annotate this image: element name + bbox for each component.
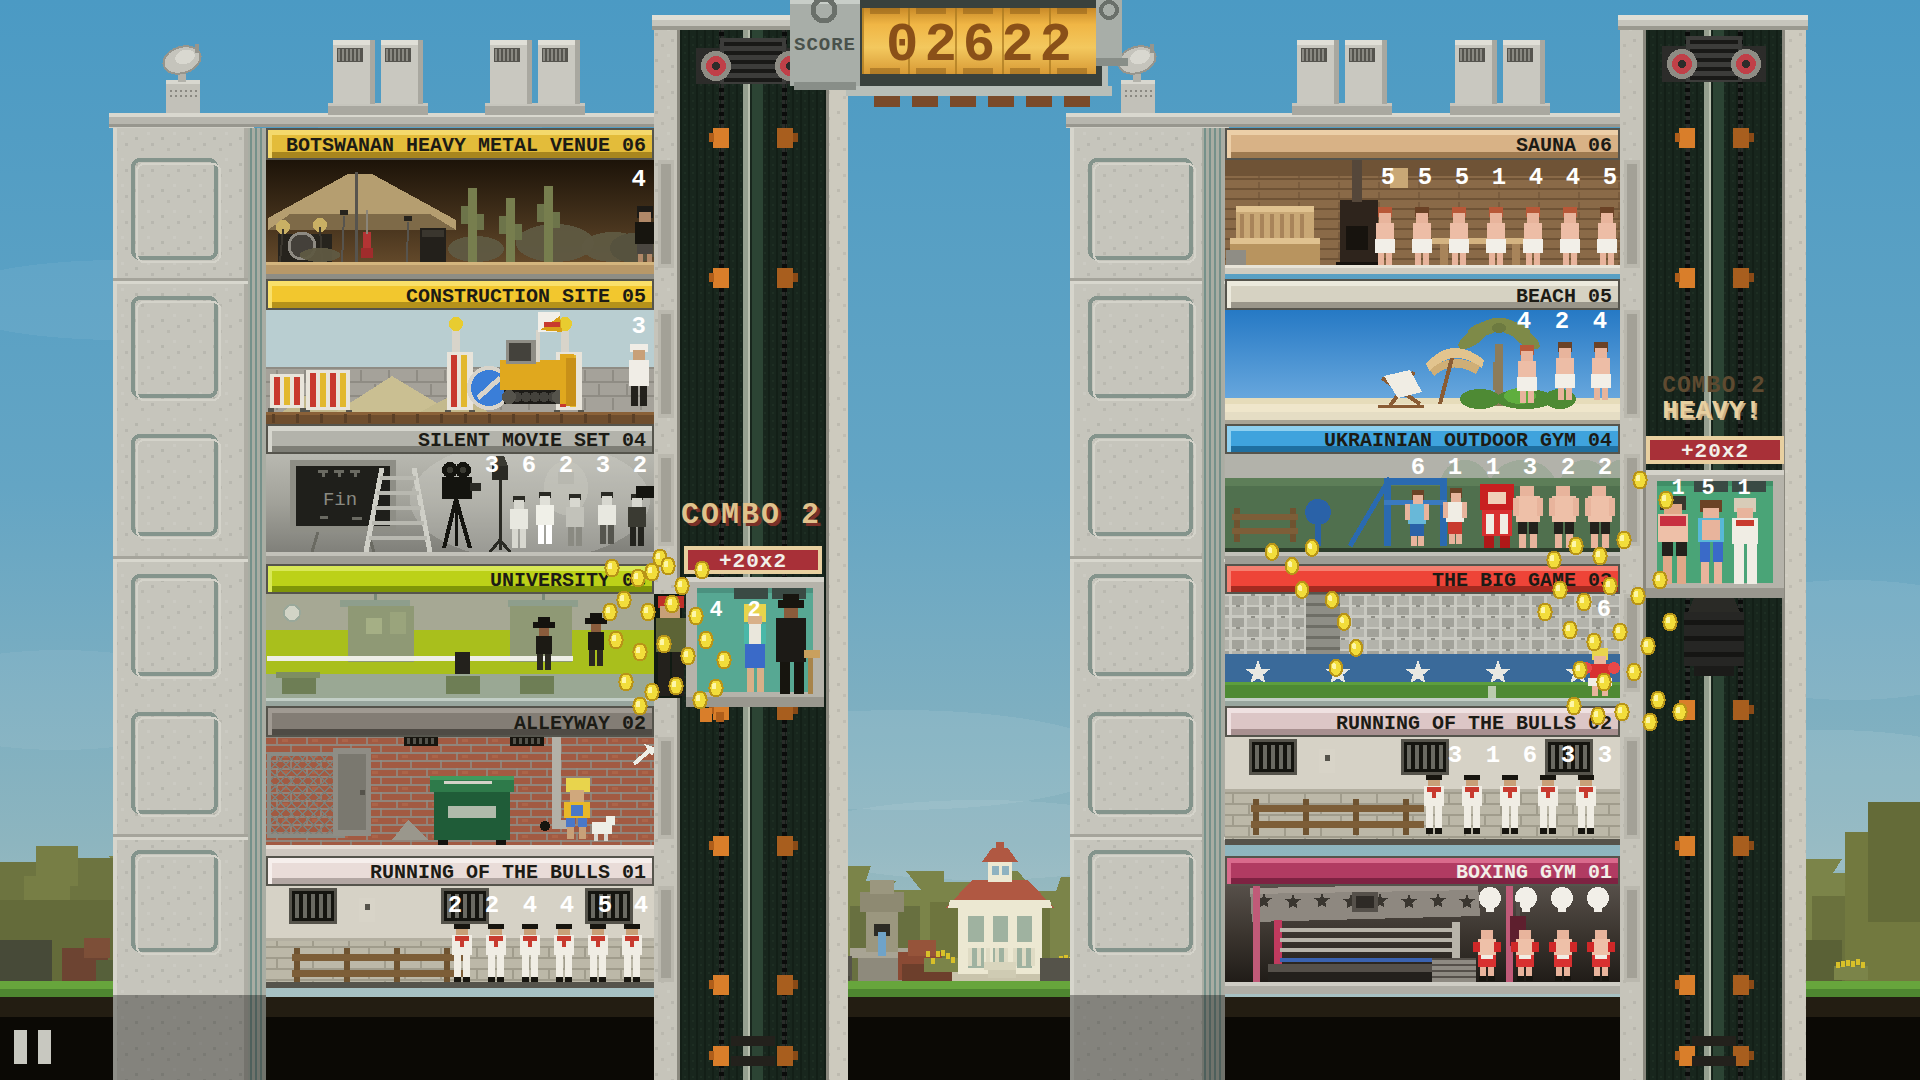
svg-text:5: 5 bbox=[1418, 164, 1432, 191]
svg-text:6: 6 bbox=[1523, 742, 1537, 769]
svg-text:+20x2: +20x2 bbox=[1681, 440, 1749, 463]
svg-text:5: 5 bbox=[1701, 476, 1714, 501]
svg-text:3: 3 bbox=[596, 452, 610, 479]
svg-text:2: 2 bbox=[448, 892, 462, 919]
svg-text:RUNNING OF THE BULLS 02: RUNNING OF THE BULLS 02 bbox=[1336, 712, 1612, 735]
svg-text:BOXING GYM 01: BOXING GYM 01 bbox=[1456, 861, 1612, 884]
svg-text:2: 2 bbox=[633, 452, 647, 479]
svg-text:4: 4 bbox=[560, 892, 574, 919]
svg-text:1: 1 bbox=[1486, 454, 1500, 481]
svg-text:4: 4 bbox=[523, 892, 537, 919]
svg-text:HEAVY!: HEAVY! bbox=[1662, 396, 1762, 426]
svg-text:5: 5 bbox=[1603, 164, 1617, 191]
svg-text:Fin: Fin bbox=[323, 489, 357, 511]
svg-text:5: 5 bbox=[1455, 164, 1469, 191]
svg-text:SCORE: SCORE bbox=[794, 34, 856, 56]
svg-text:UNIVERSITY 03: UNIVERSITY 03 bbox=[490, 569, 646, 592]
svg-text:COMBO 2: COMBO 2 bbox=[681, 498, 821, 532]
svg-text:4: 4 bbox=[1593, 308, 1607, 335]
svg-text:3: 3 bbox=[1598, 742, 1612, 769]
svg-text:1: 1 bbox=[1737, 476, 1750, 501]
svg-text:1: 1 bbox=[1486, 742, 1500, 769]
svg-text:4: 4 bbox=[709, 598, 722, 623]
svg-text:4: 4 bbox=[634, 892, 648, 919]
svg-text:3: 3 bbox=[1523, 454, 1537, 481]
svg-text:4: 4 bbox=[1517, 308, 1531, 335]
svg-text:4: 4 bbox=[1529, 164, 1543, 191]
svg-text:1: 1 bbox=[1448, 454, 1462, 481]
svg-text:1: 1 bbox=[1492, 164, 1506, 191]
svg-text:02622: 02622 bbox=[886, 15, 1078, 76]
svg-text:2: 2 bbox=[1561, 454, 1575, 481]
svg-text:BEACH 05: BEACH 05 bbox=[1516, 285, 1612, 308]
svg-text:5: 5 bbox=[1381, 164, 1395, 191]
svg-text:RUNNING OF THE BULLS 01: RUNNING OF THE BULLS 01 bbox=[370, 861, 646, 884]
svg-text:2: 2 bbox=[485, 892, 499, 919]
svg-text:2: 2 bbox=[1598, 454, 1612, 481]
svg-text:2: 2 bbox=[1555, 308, 1569, 335]
svg-text:1: 1 bbox=[1671, 476, 1684, 501]
svg-text:+20x2: +20x2 bbox=[719, 550, 787, 573]
svg-text:2: 2 bbox=[559, 452, 573, 479]
svg-text:3: 3 bbox=[1561, 742, 1575, 769]
svg-text:SILENT MOVIE SET 04: SILENT MOVIE SET 04 bbox=[418, 429, 646, 452]
svg-text:6: 6 bbox=[1411, 454, 1425, 481]
svg-text:3: 3 bbox=[1448, 742, 1462, 769]
svg-text:BOTSWANAN HEAVY METAL VENUE 06: BOTSWANAN HEAVY METAL VENUE 06 bbox=[286, 134, 646, 157]
svg-text:4: 4 bbox=[1566, 164, 1580, 191]
svg-text:2: 2 bbox=[747, 598, 760, 623]
svg-text:6: 6 bbox=[522, 452, 536, 479]
svg-text:5: 5 bbox=[598, 892, 612, 919]
svg-text:6: 6 bbox=[1597, 596, 1611, 623]
svg-text:CONSTRUCTION SITE 05: CONSTRUCTION SITE 05 bbox=[406, 285, 646, 308]
svg-text:3: 3 bbox=[632, 313, 646, 340]
svg-text:3: 3 bbox=[485, 452, 499, 479]
svg-text:UKRAINIAN OUTDOOR GYM 04: UKRAINIAN OUTDOOR GYM 04 bbox=[1324, 429, 1612, 452]
svg-text:4: 4 bbox=[632, 166, 646, 193]
svg-text:SAUNA 06: SAUNA 06 bbox=[1516, 134, 1612, 157]
svg-text:THE BIG GAME 03: THE BIG GAME 03 bbox=[1432, 569, 1612, 592]
svg-text:ALLEYWAY 02: ALLEYWAY 02 bbox=[514, 712, 646, 735]
